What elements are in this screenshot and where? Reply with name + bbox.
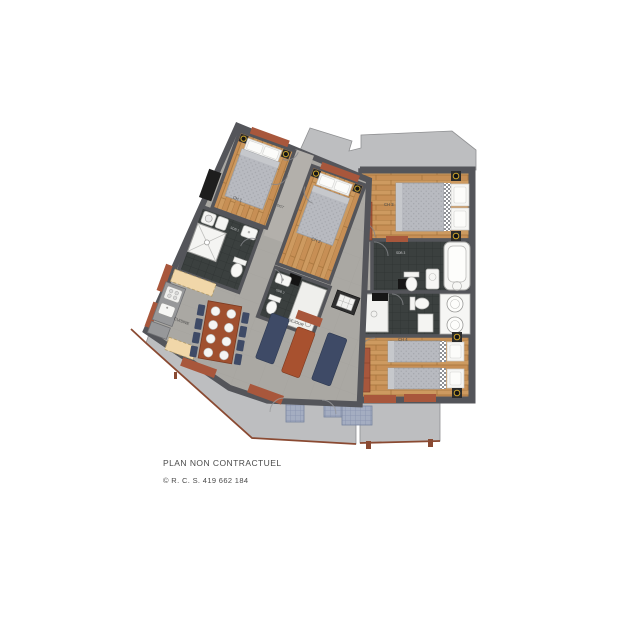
railing-post [428, 439, 433, 447]
toilet [410, 297, 415, 310]
outdoor-table [342, 406, 372, 425]
room-label-ch4: CH 4 [398, 337, 408, 342]
room-label-sdb3: SDB 3 [396, 251, 405, 255]
room-label-ch3: CH 3 [384, 202, 394, 207]
round-sink [447, 296, 463, 312]
round-sink [447, 317, 463, 333]
shower-door [418, 314, 433, 332]
window-sill [404, 394, 436, 402]
window-sill [364, 395, 396, 403]
outdoor-table [286, 404, 304, 422]
footer-disclaimer: PLAN NON CONTRACTUEL [163, 458, 282, 468]
toilet [404, 272, 419, 277]
counter-dark [372, 293, 388, 301]
page: CH 3 SDB 3 [0, 0, 640, 638]
window-sill [386, 236, 408, 242]
footer-rcs-number: © R. C. S. 419 662 184 [163, 476, 248, 485]
floor-plan: CH 3 SDB 3 [0, 0, 640, 638]
railing-post [366, 441, 371, 449]
railing-post [174, 372, 177, 379]
sink [426, 269, 439, 289]
